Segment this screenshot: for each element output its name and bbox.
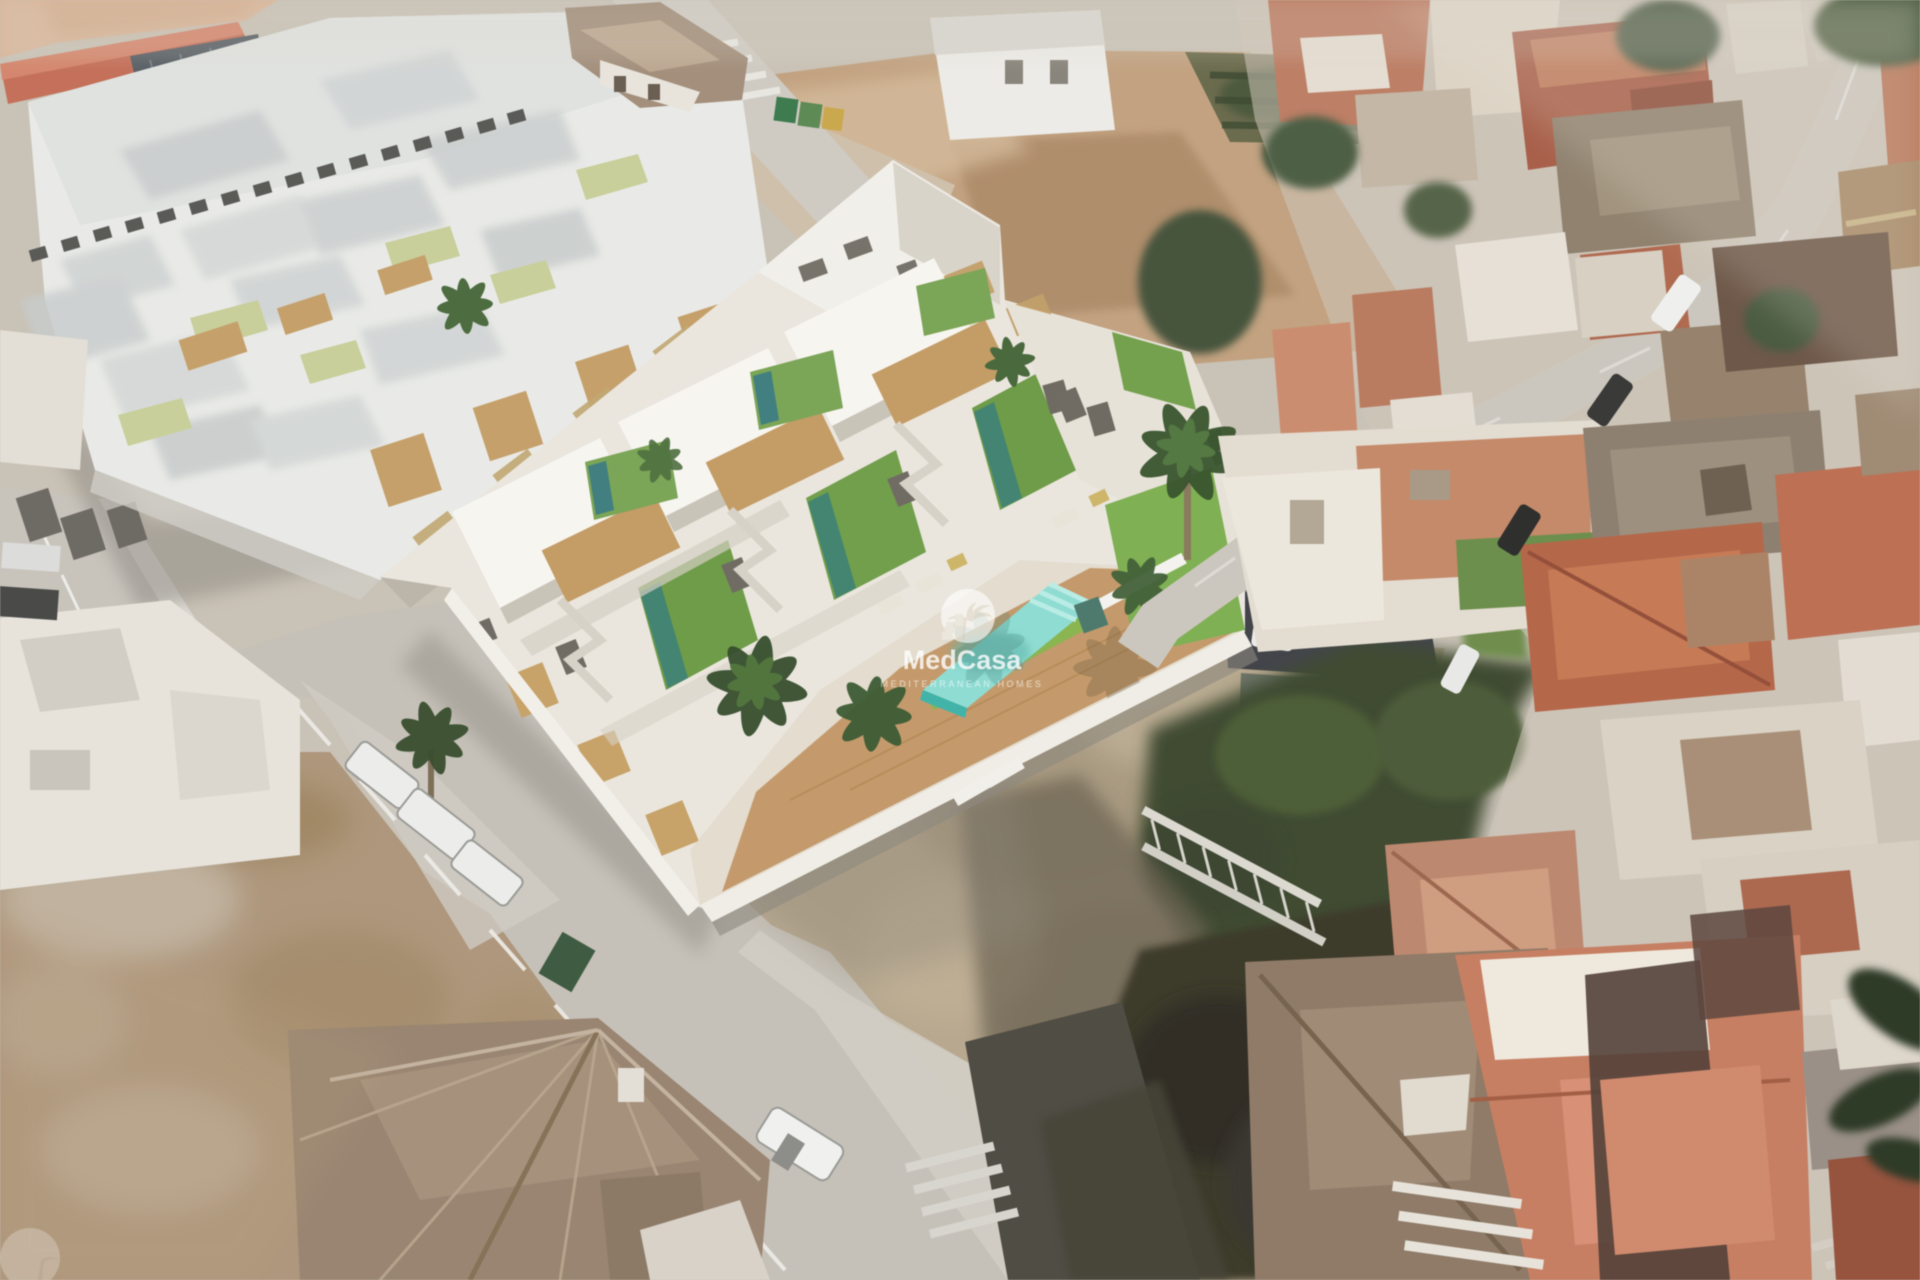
svg-text:MedCasa: MedCasa — [903, 645, 1023, 675]
svg-text:MEDITERRANEAN HOMES: MEDITERRANEAN HOMES — [881, 679, 1044, 689]
